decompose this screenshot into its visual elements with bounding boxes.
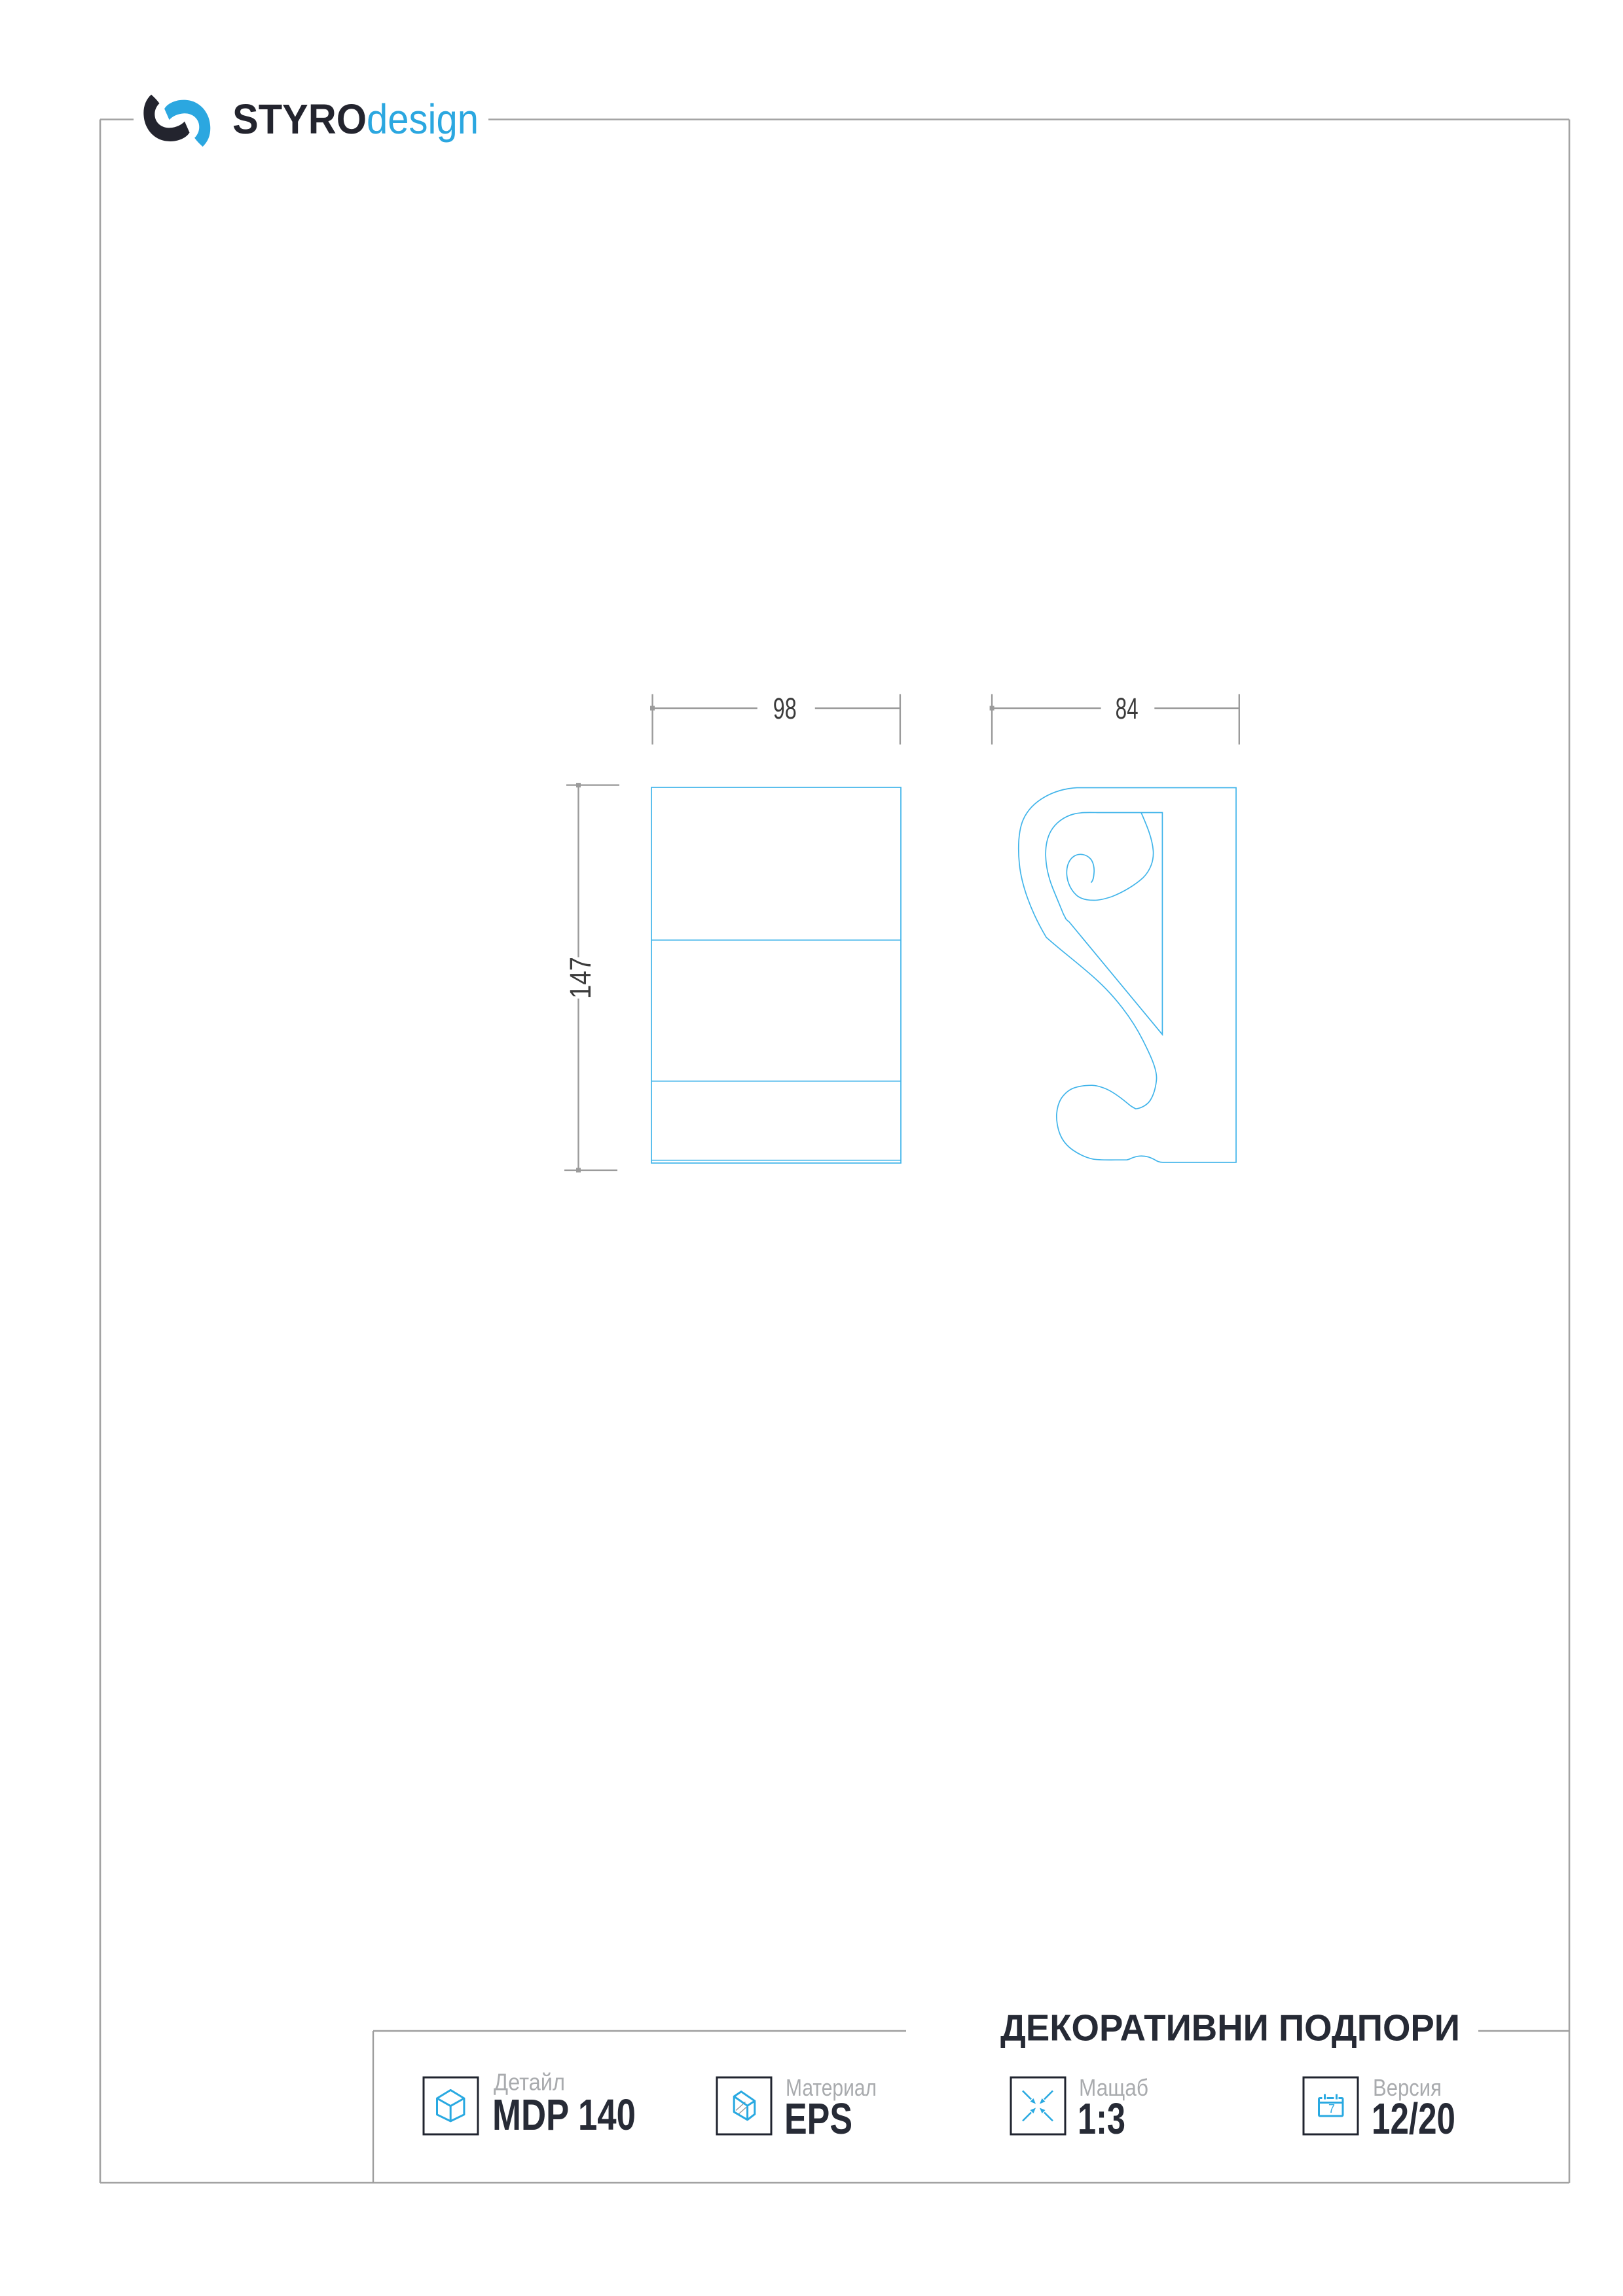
svg-text:design: design — [367, 96, 479, 143]
svg-text:EPS: EPS — [784, 2094, 852, 2144]
svg-text:147: 147 — [564, 957, 597, 999]
svg-text:12/20: 12/20 — [1372, 2094, 1455, 2144]
svg-text:84: 84 — [1116, 692, 1139, 725]
svg-text:1:3: 1:3 — [1078, 2094, 1125, 2144]
svg-text:STYRO: STYRO — [232, 96, 367, 143]
svg-text:MDP 140: MDP 140 — [492, 2090, 636, 2140]
svg-text:98: 98 — [773, 692, 797, 725]
svg-text:7: 7 — [1328, 2102, 1335, 2115]
svg-text:ДЕКОРАТИВНИ ПОДПОРИ: ДЕКОРАТИВНИ ПОДПОРИ — [1000, 2007, 1460, 2049]
